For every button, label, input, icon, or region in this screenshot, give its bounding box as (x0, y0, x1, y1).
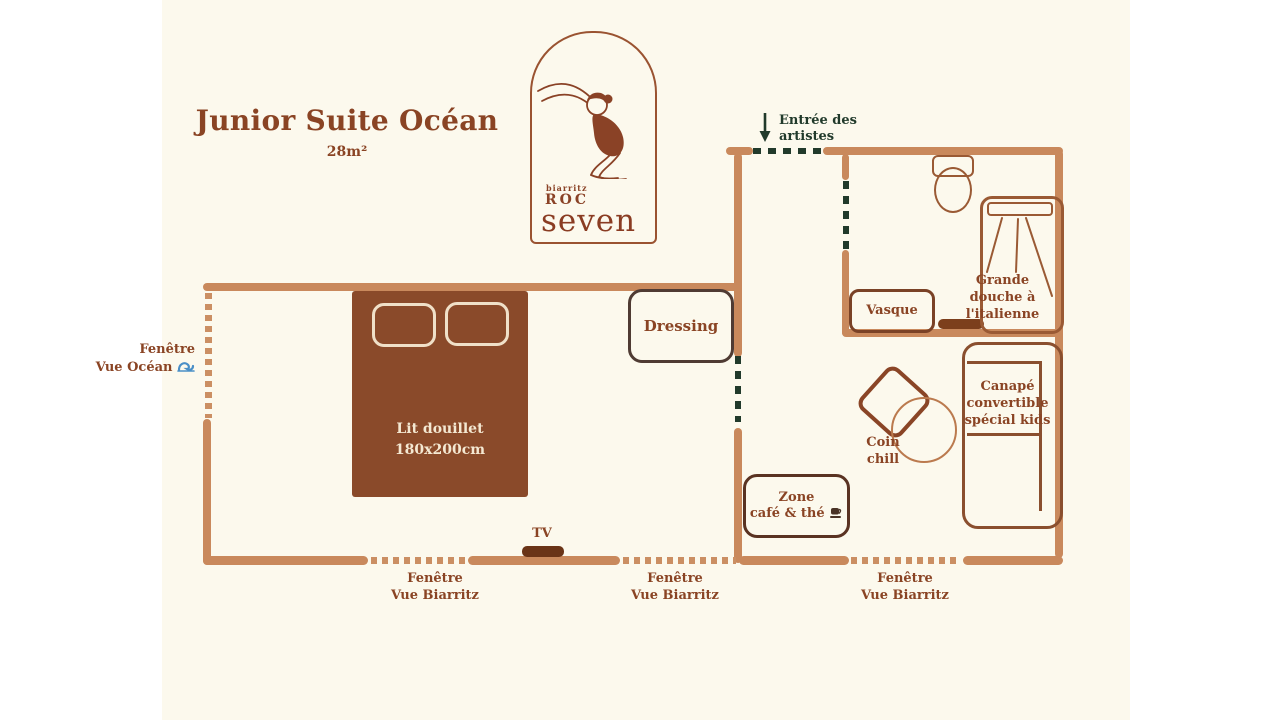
vasque-box: Vasque (849, 289, 935, 333)
logo-brand-bottom: seven (541, 203, 636, 239)
pillow-right (445, 302, 509, 346)
shower-label: Grande douche à l'italienne (950, 272, 1055, 323)
window-biarritz-1-dotted (371, 557, 465, 564)
window-biarritz-2-label: Fenêtre Vue Biarritz (615, 570, 735, 604)
window-biarritz-3-label: Fenêtre Vue Biarritz (845, 570, 965, 604)
bed: Lit douillet 180x200cm (352, 291, 528, 497)
wall-bedroom-left (203, 419, 211, 565)
wall-bottom-d (963, 556, 1063, 565)
chill-label: Coin chill (845, 434, 921, 468)
wall-bottom-c (739, 556, 849, 565)
bed-label: Lit douillet 180x200cm (352, 419, 528, 461)
window-ocean-label: Fenêtre Vue Océan (85, 341, 195, 377)
bathroom-door-dashed (843, 181, 849, 249)
wall-middle-upper (734, 153, 742, 357)
page-title: Junior Suite Océan (182, 104, 512, 137)
roc-seven-logo: biarritz ROC seven (530, 31, 657, 244)
window-biarritz-1-label: Fenêtre Vue Biarritz (375, 570, 495, 604)
wall-bottom-a (203, 556, 368, 565)
title-block: Junior Suite Océan 28m² (182, 104, 512, 160)
sofa (962, 342, 1063, 529)
wave-icon (177, 360, 195, 373)
room-area: 28m² (182, 144, 512, 160)
window-ocean-dotted (205, 293, 212, 418)
sofa-line-top (967, 361, 1039, 364)
floorplan-canvas: Junior Suite Océan 28m² biarritz ROC sev… (0, 0, 1280, 720)
toilet-bowl (934, 167, 972, 213)
entrance-label: Entrée des artistes (779, 113, 869, 145)
wall-bathroom-stub (842, 154, 849, 180)
wall-bathroom-left (842, 250, 849, 336)
pillow-left (372, 303, 436, 347)
sofa-line-mid (967, 433, 1039, 436)
coffee-cup-icon (829, 507, 843, 519)
window-biarritz-3-dotted (851, 557, 961, 564)
bedroom-door-dashed (735, 356, 741, 422)
wall-top-right (823, 147, 1063, 155)
dressing-box: Dressing (628, 289, 734, 363)
sofa-label: Canapé convertible spécial kids (960, 378, 1055, 429)
wall-bottom-b (468, 556, 620, 565)
down-arrow-icon (758, 112, 772, 143)
yoga-figure-icon (534, 59, 649, 179)
window-biarritz-2-dotted (623, 557, 736, 564)
wall-middle-lower (734, 428, 742, 563)
tv-label: TV (512, 526, 572, 542)
entrance-door-dashed (753, 148, 822, 154)
tv (522, 546, 564, 557)
coffee-zone-box: Zone café & thé (743, 474, 850, 538)
